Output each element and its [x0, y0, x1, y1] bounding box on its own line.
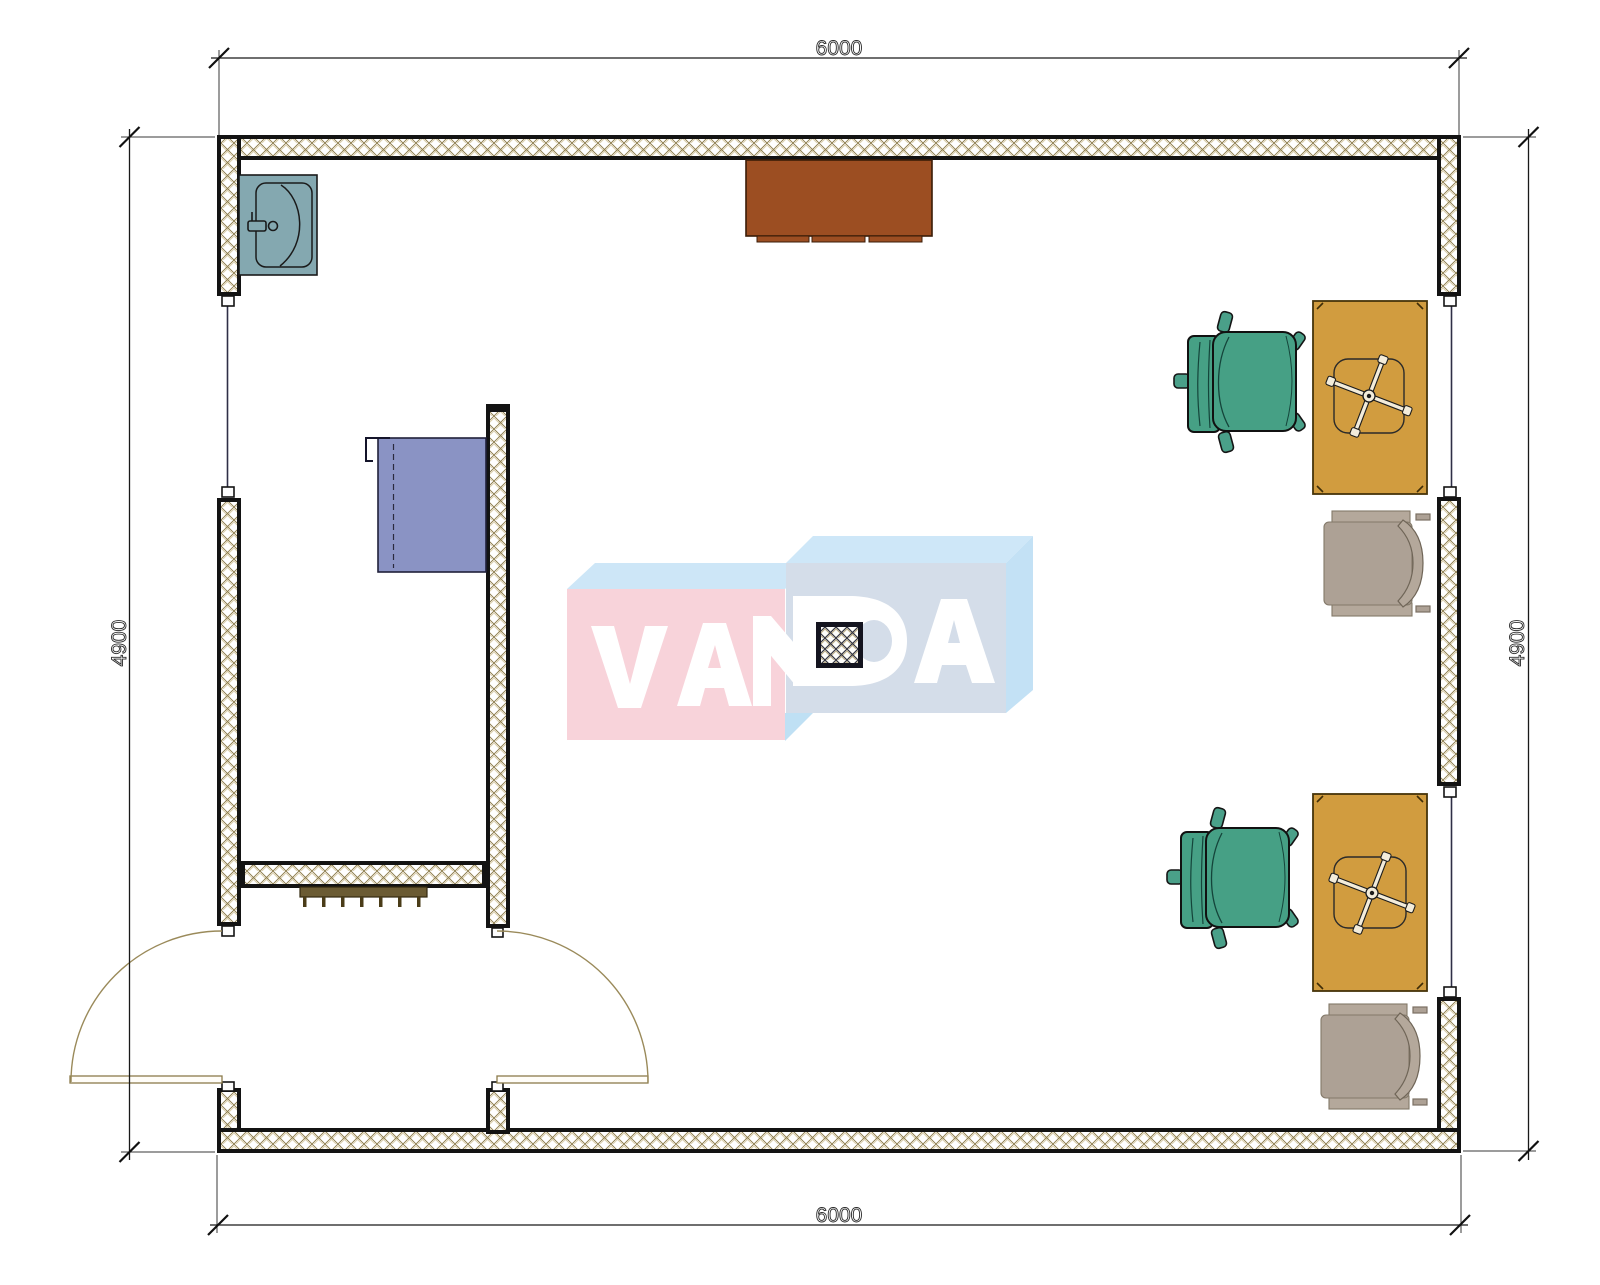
- svg-text:6000: 6000: [816, 1204, 863, 1227]
- svg-text:4900: 4900: [108, 620, 131, 667]
- svg-text:6000: 6000: [816, 37, 863, 60]
- svg-text:4900: 4900: [1506, 620, 1529, 667]
